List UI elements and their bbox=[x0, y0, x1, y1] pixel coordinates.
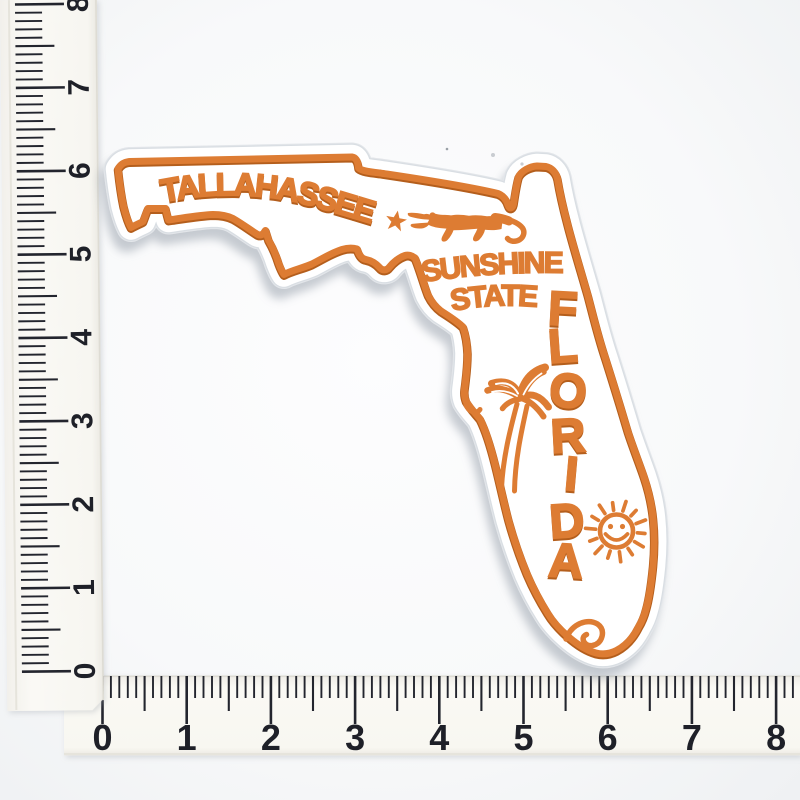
svg-text:8: 8 bbox=[62, 0, 95, 12]
svg-text:0: 0 bbox=[69, 662, 102, 679]
svg-text:6: 6 bbox=[64, 162, 97, 179]
svg-text:5: 5 bbox=[64, 246, 97, 263]
svg-text:4: 4 bbox=[429, 717, 449, 758]
svg-text:7: 7 bbox=[682, 717, 702, 758]
svg-text:3: 3 bbox=[66, 412, 99, 429]
svg-text:1: 1 bbox=[68, 579, 101, 596]
svg-text:3: 3 bbox=[345, 717, 365, 758]
svg-text:2: 2 bbox=[261, 717, 281, 758]
svg-text:STATE: STATE bbox=[448, 279, 538, 317]
svg-text:6: 6 bbox=[598, 717, 618, 758]
svg-text:4: 4 bbox=[65, 329, 98, 346]
svg-text:5: 5 bbox=[513, 717, 533, 758]
svg-text:7: 7 bbox=[63, 79, 96, 96]
svg-text:2: 2 bbox=[67, 496, 100, 513]
svg-text:A: A bbox=[547, 534, 584, 589]
svg-text:0: 0 bbox=[92, 717, 112, 758]
svg-text:1: 1 bbox=[177, 717, 197, 758]
svg-text:8: 8 bbox=[766, 717, 786, 758]
